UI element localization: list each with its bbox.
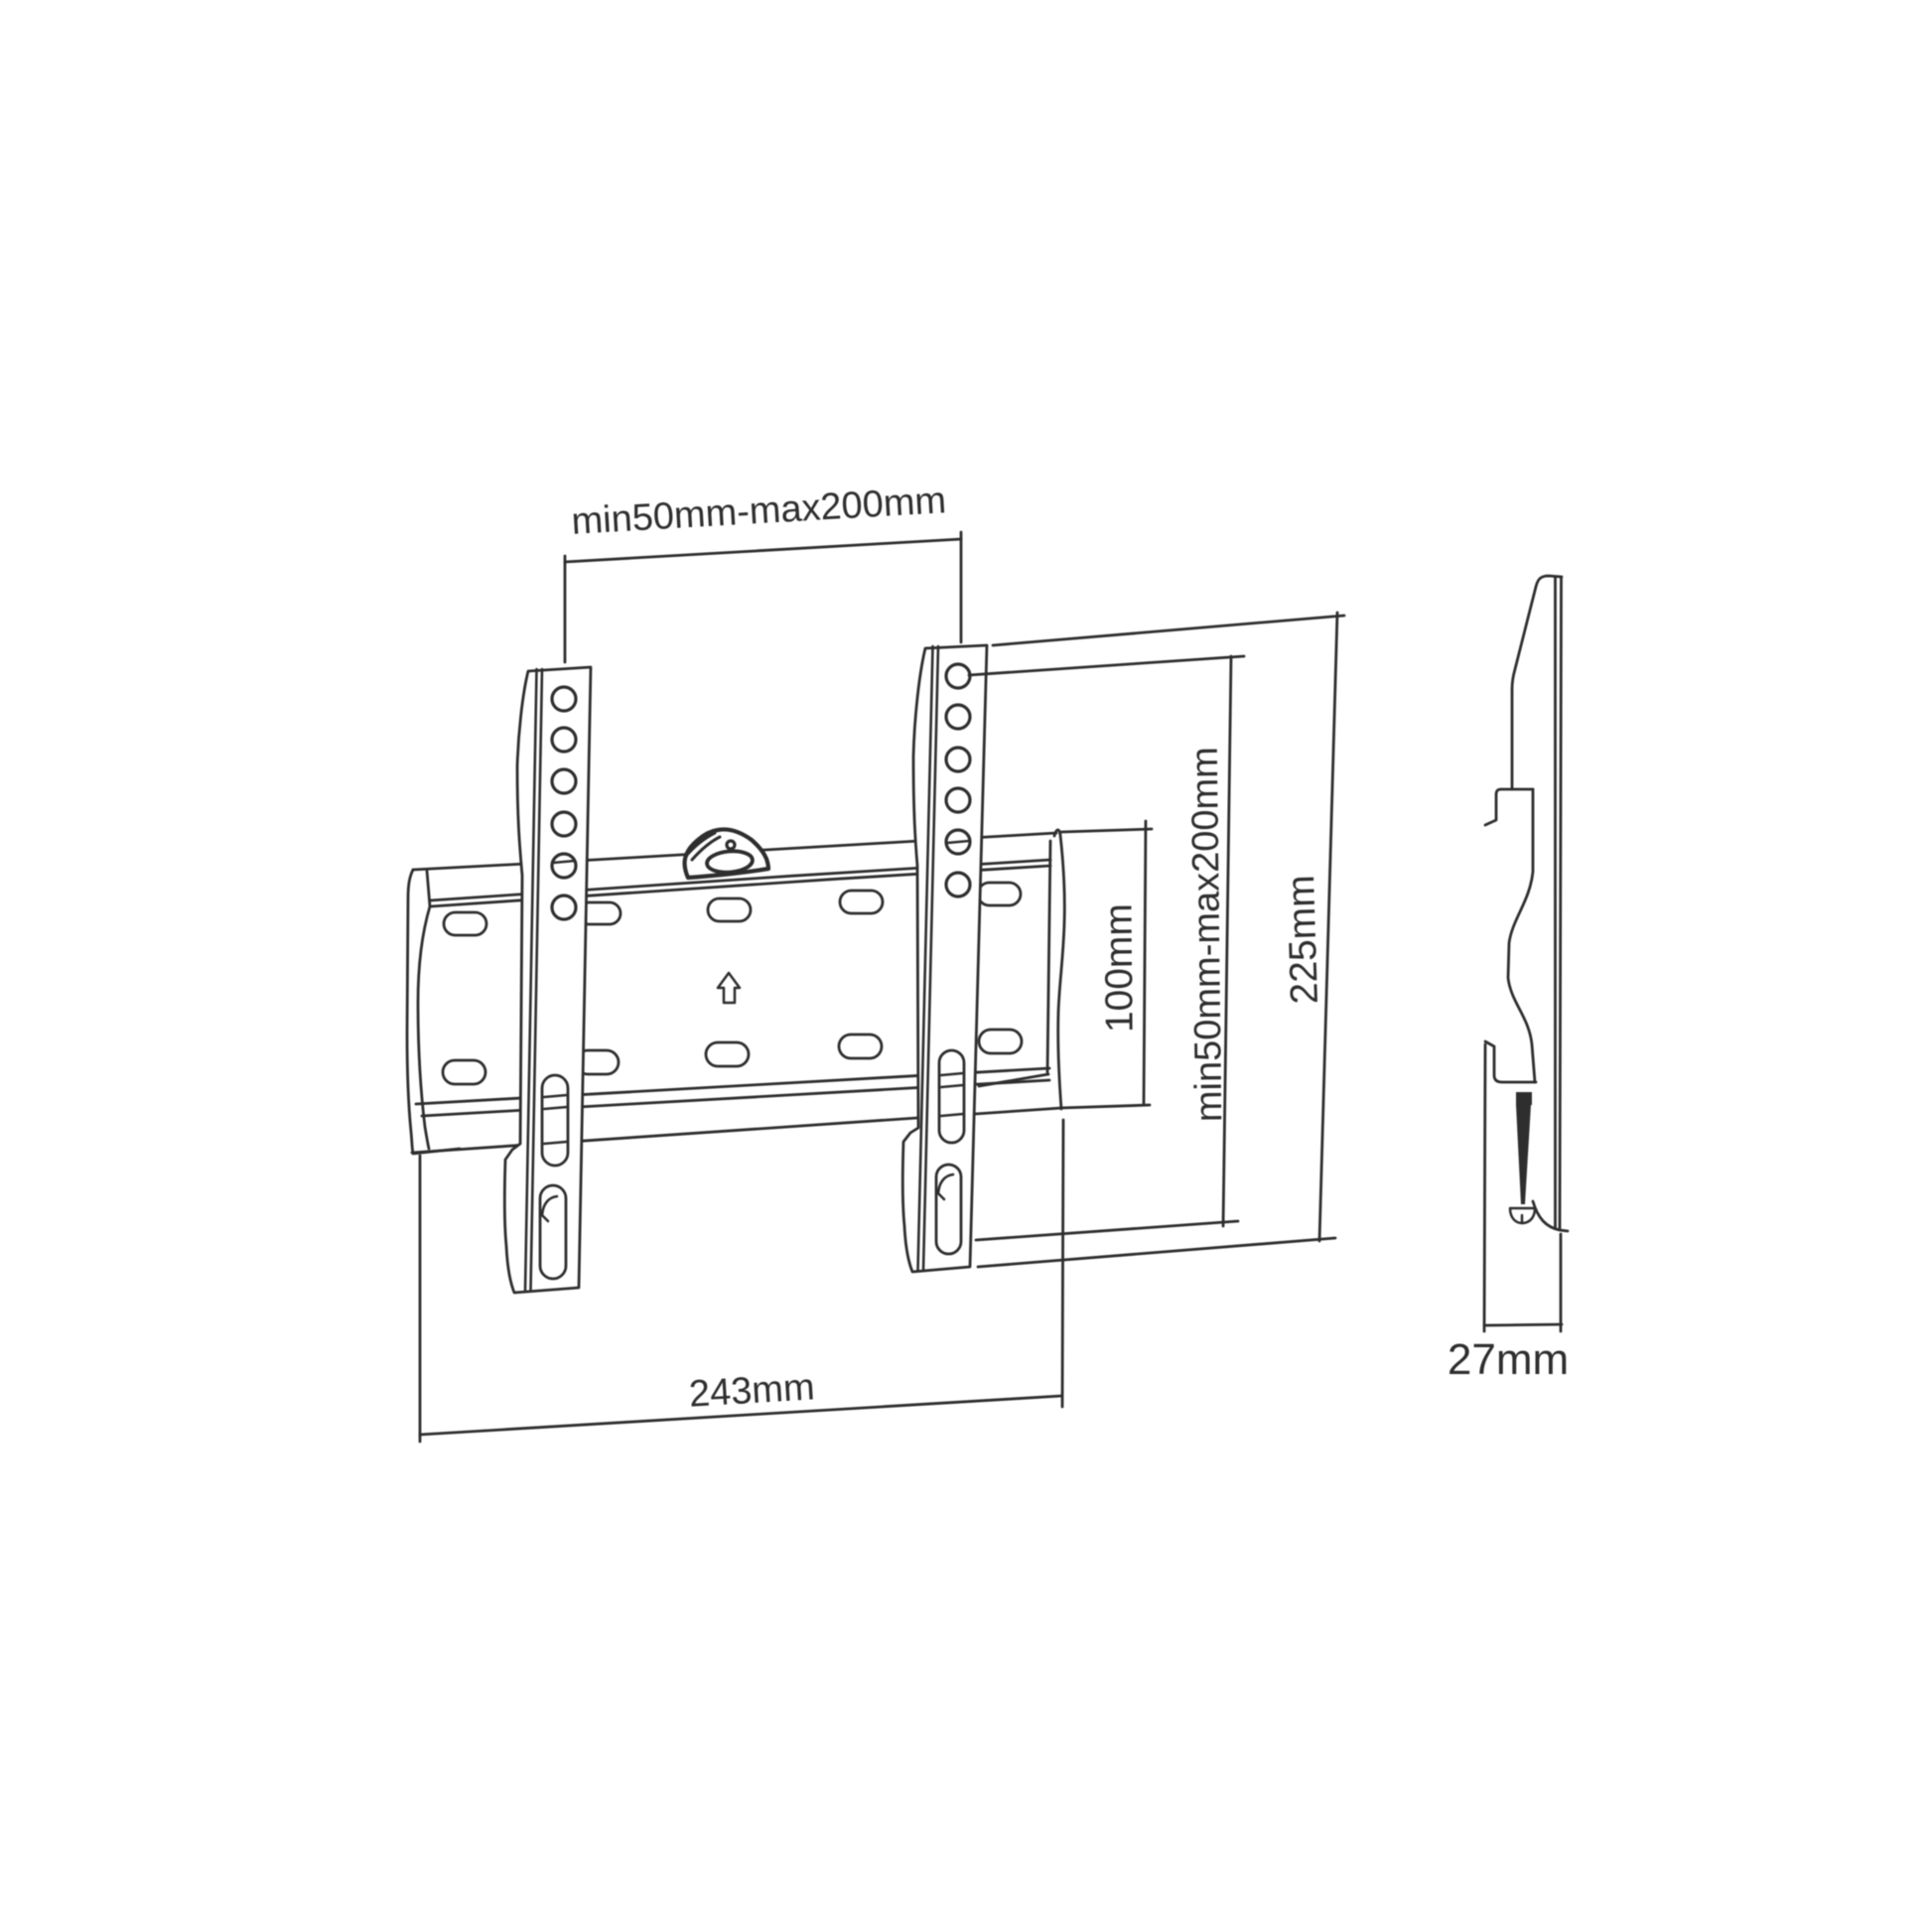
- svg-text:100mm: 100mm: [1097, 903, 1141, 1033]
- svg-text:225mm: 225mm: [1280, 875, 1326, 1005]
- svg-text:27mm: 27mm: [1448, 1335, 1569, 1384]
- svg-text:min50mm-max200mm: min50mm-max200mm: [1184, 747, 1231, 1122]
- svg-text:243mm: 243mm: [688, 1366, 816, 1415]
